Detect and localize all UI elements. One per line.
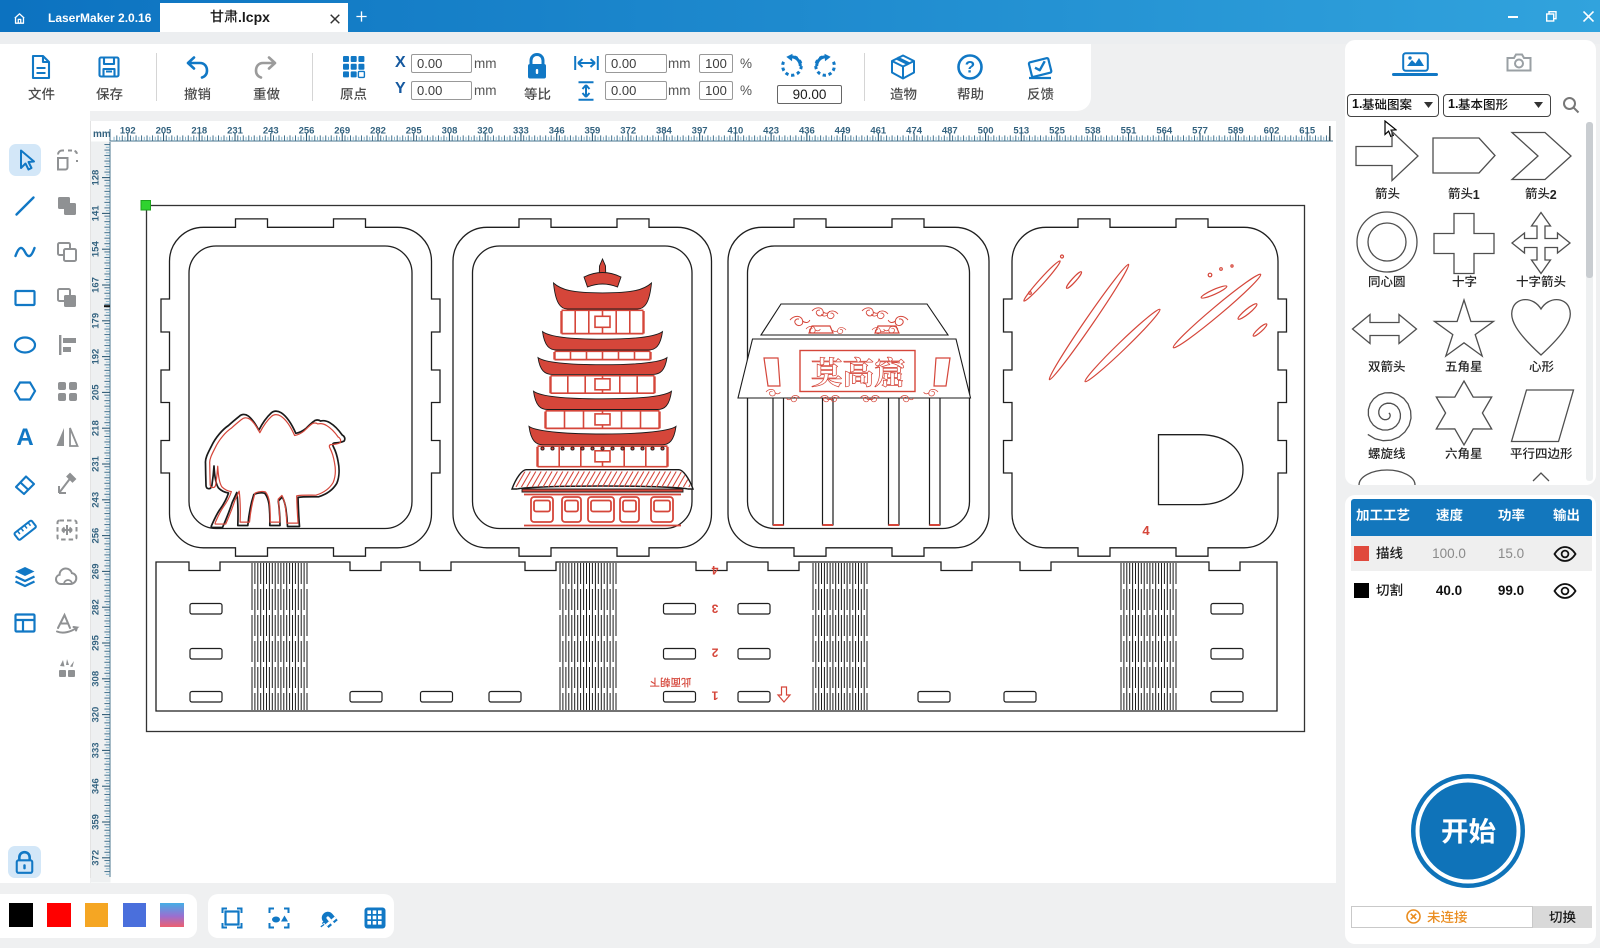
svg-text:231: 231 [91,455,102,472]
svg-text:4: 4 [1142,523,1150,538]
svg-text:1: 1 [711,689,718,703]
svg-text:179: 179 [91,313,102,329]
svg-text:?: ? [965,58,975,77]
svg-text:346: 346 [91,778,102,794]
svg-text:154: 154 [91,241,102,258]
svg-text:192: 192 [91,349,102,365]
svg-text:282: 282 [91,599,102,615]
svg-text:320: 320 [91,707,102,723]
svg-text:mm: mm [93,129,111,140]
svg-text:128: 128 [91,170,102,186]
svg-text:A: A [16,424,33,450]
svg-text:141: 141 [91,205,102,222]
svg-text:218: 218 [91,420,102,436]
svg-text:243: 243 [91,492,102,508]
svg-text:359: 359 [91,814,102,830]
svg-text:295: 295 [91,634,102,651]
svg-text:3: 3 [711,602,718,616]
svg-text:2: 2 [711,646,718,660]
svg-text:269: 269 [91,563,102,579]
svg-text:256: 256 [91,528,102,544]
svg-text:167: 167 [91,277,102,293]
svg-text:372: 372 [91,850,102,866]
svg-text:4: 4 [711,563,718,577]
svg-text:205: 205 [91,384,102,401]
svg-text:308: 308 [91,671,102,687]
svg-text:333: 333 [91,742,102,758]
